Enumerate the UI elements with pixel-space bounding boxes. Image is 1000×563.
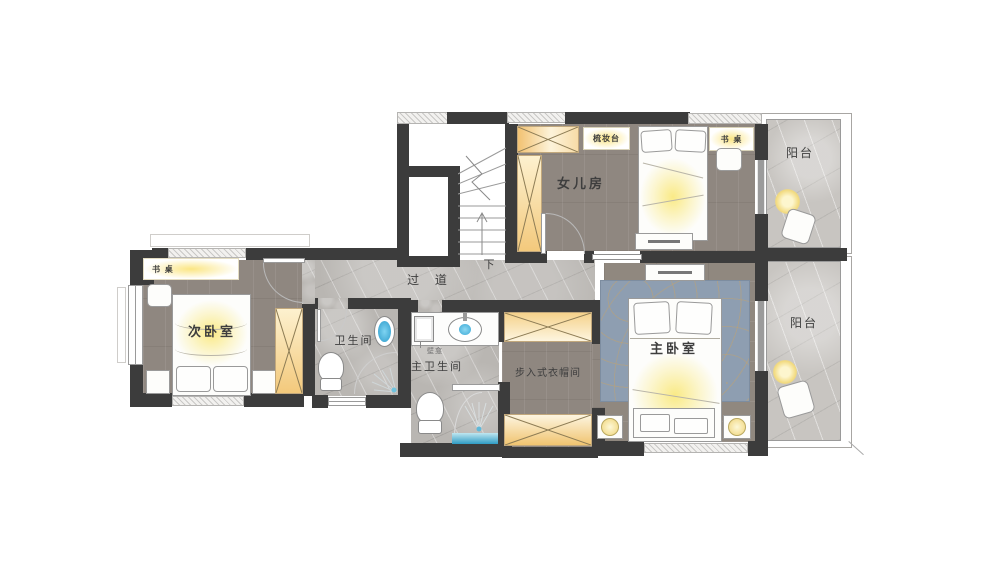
hallway-label: 过 道 [402,274,458,287]
daughter-desk-label: 书 桌 [721,134,743,145]
master-bath-shower-shelf [452,384,500,391]
wall [755,248,847,261]
secondary-bed-pillow [213,366,248,392]
secondary-bedroom-label: 次卧室 [180,326,244,340]
wall [502,447,598,458]
wall-window-hatch [507,112,567,123]
balcony-slider-door [757,160,765,216]
secondary-desk-label: 书 桌 [152,264,174,275]
window-left [128,285,143,365]
niche-label: 壁龛 [422,348,448,356]
wall-window-hatch [172,396,244,406]
tv-icon [658,271,692,274]
bathroom-label: 卫生间 [328,335,380,347]
wall [510,300,598,312]
wall [755,214,768,250]
eave-ledge-top [150,234,310,247]
balcony-top-label: 阳台 [777,147,823,160]
master-bed-pillow [633,301,671,335]
wall [397,124,409,267]
master-nightstand-lamp [728,418,746,436]
wall [640,251,767,263]
staircase [458,124,506,256]
bench-cushion [674,418,708,434]
wall [755,124,768,160]
closet-wardrobe-top [504,312,592,342]
tv-icon [648,240,680,243]
wall [748,441,768,456]
stairs-down-label: 下 [480,259,500,271]
niche-leader-line [420,342,421,348]
master-bath-mirror [414,316,434,342]
daughter-bed-pillow [674,129,706,153]
curtain-ledge-left [117,287,126,363]
master-nightstand-lamp [601,418,619,436]
master-bath-sink-water [459,324,471,335]
wardrobe-daughter-left [517,155,542,252]
sliding-door-master [592,254,642,260]
wall [244,393,304,407]
wardrobe-secondary [275,308,303,394]
closet-label: 步入式衣帽间 [512,368,584,379]
wall [755,261,768,301]
wall [409,166,460,177]
wall [312,395,328,408]
wall-window-hatch [397,112,449,124]
daughter-bed-pillow [640,129,672,153]
balcony-bottom-lamp [773,360,797,384]
master-bath-shower-water [452,433,498,444]
doorway-floor [418,300,442,312]
master-bed-pillow [675,301,713,335]
master-bath-toilet-tank [418,420,442,434]
secondary-bed-fold [175,342,247,356]
wall [565,112,690,124]
master-bath-shower-spray [462,400,496,434]
wall-window-hatch [644,443,748,453]
wall [312,248,397,260]
floor-plan-canvas: 下 过 道 梳妆台 书 桌 女儿房 阳台 书 桌 次卧室 [0,0,1000,563]
wall [400,443,512,457]
master-bed-headboard-line [630,338,720,339]
balcony-bottom-label: 阳台 [781,317,827,330]
balcony-slider-door [757,301,765,373]
bathroom-basin-water [378,321,391,342]
doorway-floor [318,298,348,309]
dressing-table-label: 梳妆台 [593,133,620,144]
daughter-desk-chair [716,148,742,171]
wall [447,112,509,124]
stair-direction-arrow [477,213,487,255]
wall [755,371,768,443]
wall [302,304,315,396]
master-bathroom-label: 主卫生间 [408,361,466,373]
master-bath-faucet [463,313,467,321]
bench-cushion [640,414,670,432]
wall [397,256,460,267]
closet-wardrobe-bottom [504,414,592,446]
wall-window-hatch [688,113,762,124]
window-bathroom [328,397,366,406]
wall [398,298,411,398]
wall [411,300,418,312]
wall [366,395,411,408]
secondary-desk: 书 桌 [143,258,239,280]
balcony-corner-tick [848,441,864,455]
wardrobe-daughter-top [517,126,579,153]
wall [348,298,400,309]
wall [592,441,644,456]
dressing-table: 梳妆台 [583,127,630,150]
bathroom-shower-spray [370,366,398,394]
master-bedroom-label: 主卧室 [642,343,706,357]
daughter-room-label: 女儿房 [548,178,614,192]
secondary-desk-chair [147,284,172,307]
secondary-bed-pillow [176,366,211,392]
wall [130,393,172,407]
secondary-nightstand [146,370,170,394]
wall-window-hatch [168,248,246,258]
bathroom-toilet-tank [320,378,342,391]
